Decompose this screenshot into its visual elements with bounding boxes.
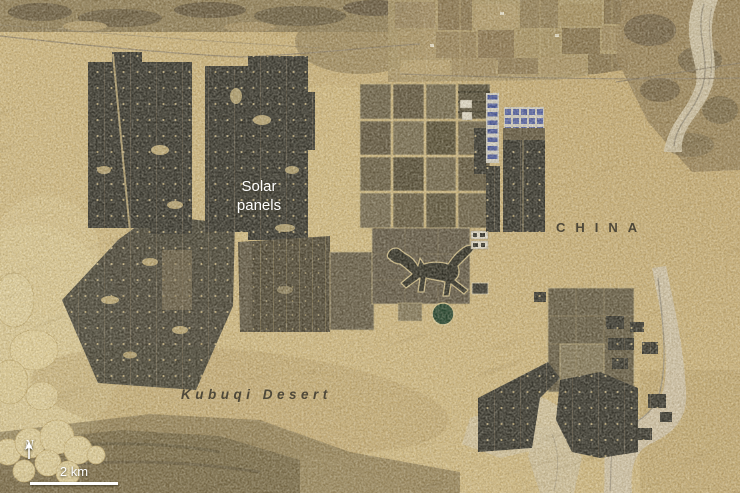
desert-label: Kubuqi Desert xyxy=(181,387,332,402)
scale-bar: 2 km xyxy=(30,464,118,485)
satellite-image: Solar panels CHINA Kubuqi Desert 2 km N xyxy=(0,0,740,493)
solar-panels-label: Solar panels xyxy=(224,177,294,215)
dune-texture xyxy=(0,0,740,493)
scale-bar-label: 2 km xyxy=(30,464,118,479)
north-arrow: N xyxy=(18,440,40,454)
country-label: CHINA xyxy=(556,220,647,235)
satellite-basemap xyxy=(0,0,740,493)
north-arrow-icon xyxy=(18,440,40,460)
scale-bar-line xyxy=(30,482,118,485)
